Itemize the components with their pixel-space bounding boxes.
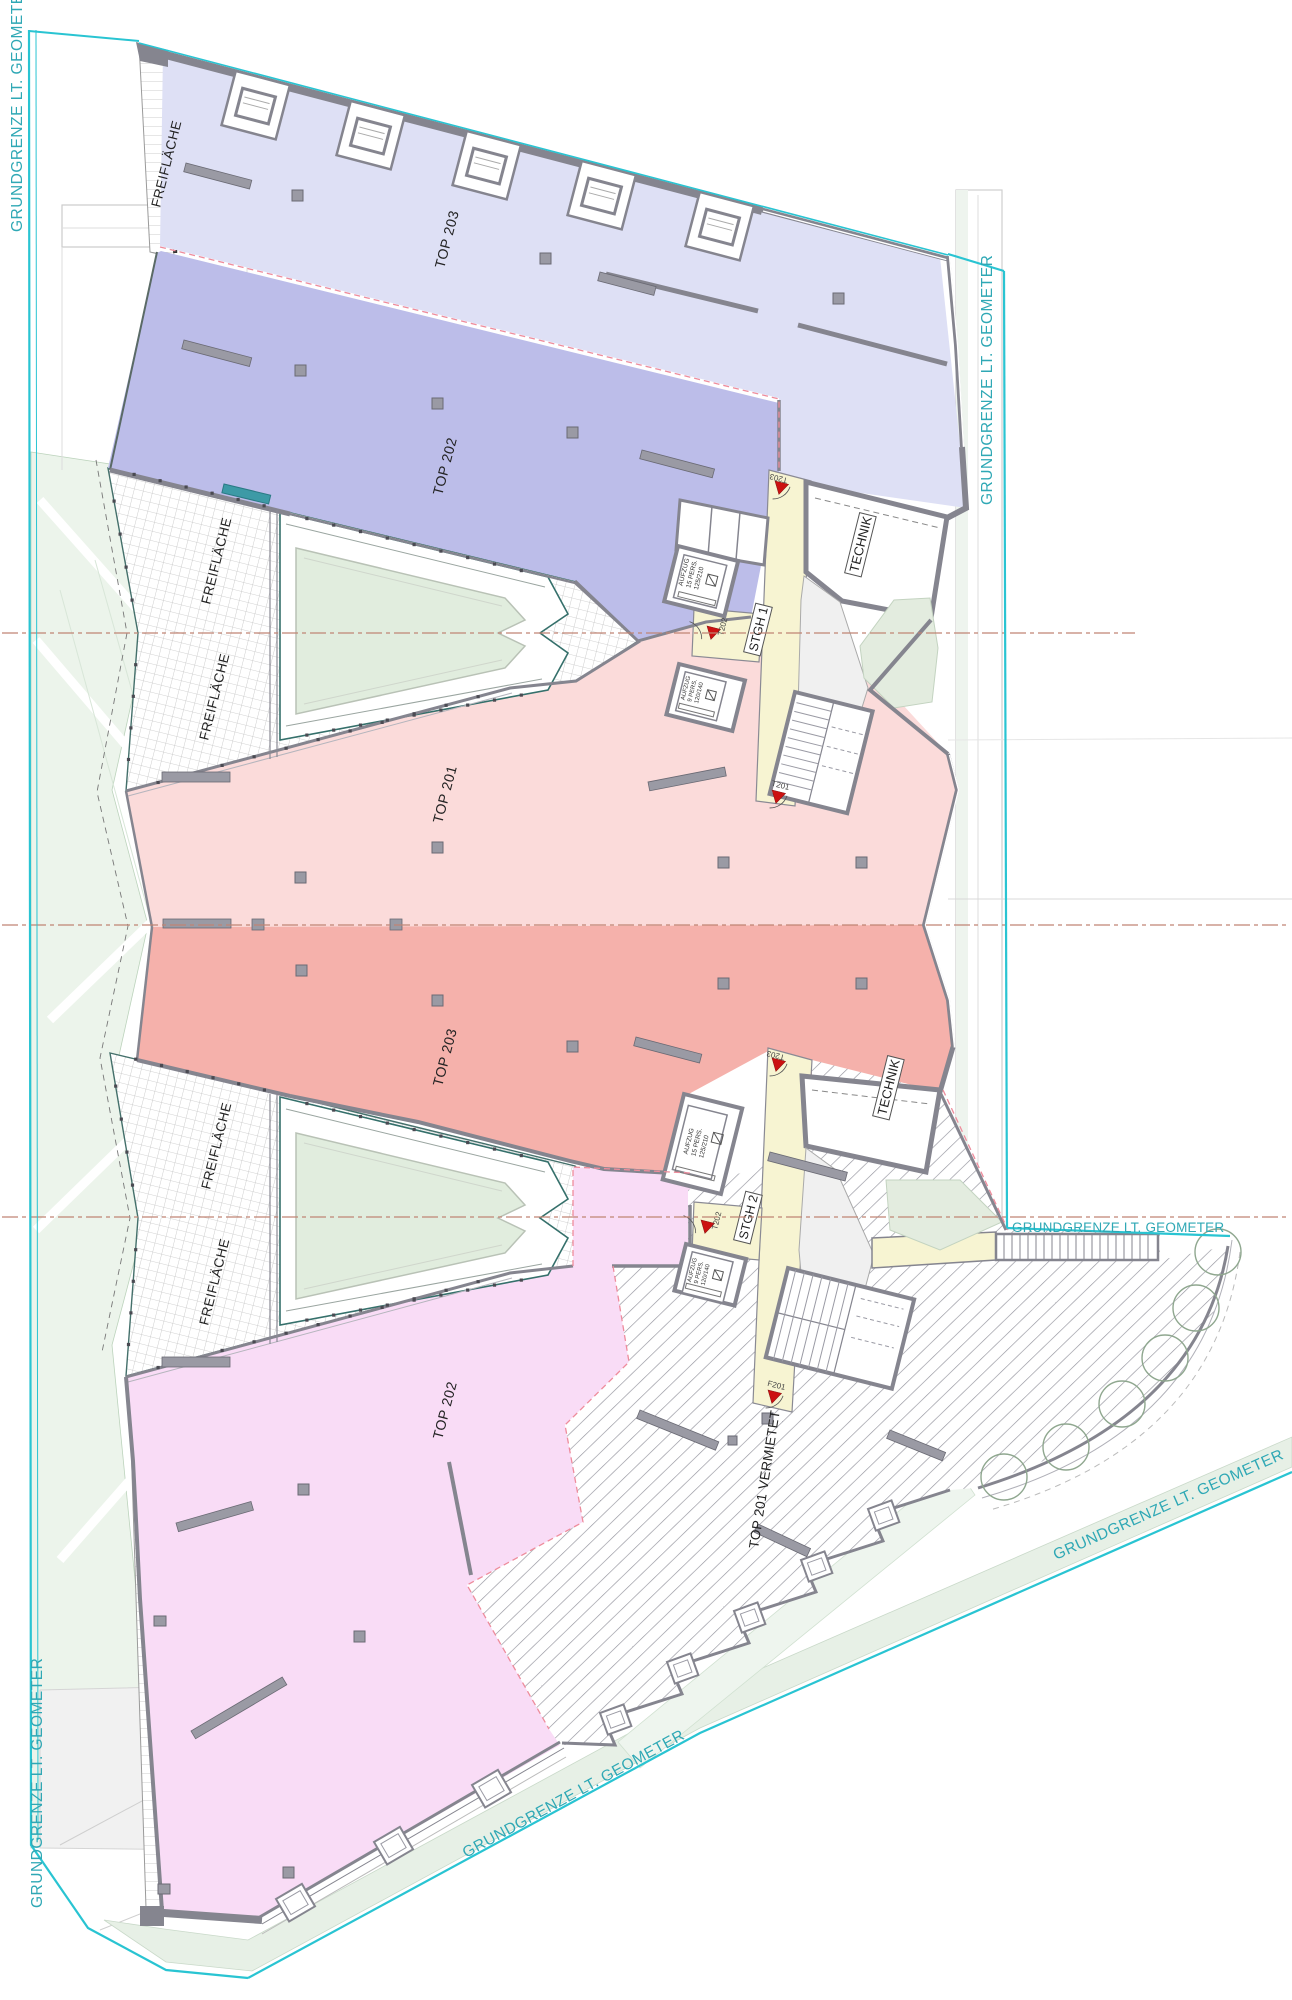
svg-text:GRUNDGRENZE LT. GEOMETER: GRUNDGRENZE LT. GEOMETER [1012,1220,1224,1235]
svg-text:GRUNDGRENZE LT. GEOMETER: GRUNDGRENZE LT. GEOMETER [29,1658,46,1908]
svg-text:GRUNDGRENZE LT. GEOMETER: GRUNDGRENZE LT. GEOMETER [9,0,26,232]
svg-text:GRUNDGRENZE LT. GEOMETER: GRUNDGRENZE LT. GEOMETER [979,255,996,505]
